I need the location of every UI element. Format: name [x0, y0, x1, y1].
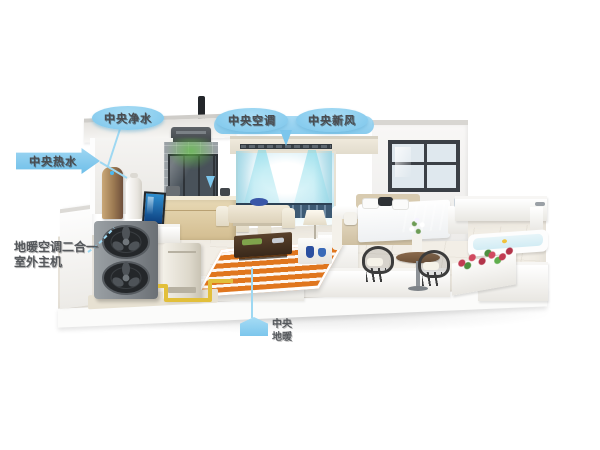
chair-legs: [422, 272, 442, 286]
flower-vase: [412, 234, 422, 254]
hot-water-tank: [126, 177, 142, 219]
sofa-armrest: [332, 216, 342, 250]
bedroom-window: [388, 140, 460, 192]
label-floor-heating: 中央 地暖: [272, 319, 292, 344]
hvac-cutaway-scene: 中央净水 中央空调 中央新风 中央热水 地暖空调二合一 室外主机 中央 地暖: [0, 0, 600, 450]
indicator-led: [110, 171, 114, 175]
label-heat-pump-line2: 室外主机: [14, 255, 98, 270]
table-centerpiece: [250, 198, 268, 206]
label-hot-water: 中央热水: [16, 148, 100, 174]
sofa-pillow: [344, 212, 357, 225]
bed-pillow: [362, 198, 379, 209]
blue-vase: [306, 246, 314, 258]
kitchen-appliance: [220, 188, 230, 196]
window-glint: [395, 147, 411, 177]
label-fresh-air-text: 中央新风: [308, 112, 356, 128]
hydronic-module: [163, 243, 201, 300]
plant-glow: [166, 138, 216, 170]
label-fresh-air: 中央新风: [296, 108, 368, 132]
bed-pillow: [378, 197, 393, 206]
label-heat-pump-line1: 地暖空调二合一: [14, 240, 98, 255]
fan-icon: [101, 261, 151, 295]
chair-cushion: [367, 258, 383, 266]
label-floor-heating-line2: 地暖: [272, 332, 292, 345]
label-central-ac-text: 中央空调: [228, 112, 276, 128]
chair-legs: [366, 268, 386, 282]
chair-cushion: [423, 262, 439, 270]
fan-icon: [101, 225, 151, 259]
water-purifier-cabinet: [102, 167, 123, 219]
heat-pump-outdoor-unit: [94, 221, 158, 299]
lamp-side-table: [298, 238, 332, 264]
table-base: [408, 286, 428, 291]
kitchen-appliance: [166, 186, 180, 196]
label-water-purifier: 中央净水: [92, 106, 164, 130]
table-lamp: [303, 210, 327, 225]
label-heat-pump: 地暖空调二合一 室外主机: [14, 240, 98, 270]
label-water-purifier-text: 中央净水: [104, 110, 152, 126]
window-mullion: [424, 144, 427, 188]
label-hot-water-text: 中央热水: [29, 153, 77, 169]
blue-vase: [318, 248, 326, 257]
dining-table: [228, 205, 290, 223]
label-central-ac: 中央空调: [216, 108, 288, 132]
coffee-table: [234, 232, 292, 258]
dining-chair: [282, 208, 295, 228]
bath-faucet: [535, 202, 545, 206]
lamp-stem: [314, 225, 316, 239]
label-floor-heating-line1: 中央: [272, 319, 292, 332]
bed-pillow: [392, 199, 409, 210]
